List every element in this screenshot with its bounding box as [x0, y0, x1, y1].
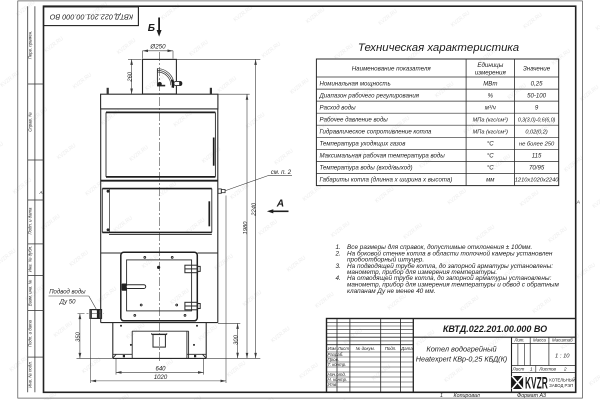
svg-text:Гидравлическое сопротивление к: Гидравлическое сопротивление котла [320, 129, 433, 136]
svg-text:640: 640 [155, 366, 166, 372]
svg-text:1 : 10: 1 : 10 [555, 354, 570, 360]
svg-text:350: 350 [76, 331, 82, 341]
svg-text:Т. контр.: Т. контр. [328, 362, 347, 367]
svg-text:°С: °С [487, 153, 494, 160]
svg-text:Копировал: Копировал [454, 393, 480, 399]
svg-text:3.: 3. [336, 263, 341, 270]
svg-text:Подп.: Подп. [385, 346, 397, 351]
svg-text:Подп. и дата: Подп. и дата [28, 319, 33, 347]
svg-text:2: 2 [563, 367, 567, 372]
svg-text:0,25: 0,25 [531, 80, 543, 87]
svg-text:Подп. и дата: Подп. и дата [28, 207, 33, 235]
svg-text:Температура воды (вход/выход): Температура воды (вход/выход) [320, 165, 413, 172]
svg-text:№ докум.: № докум. [356, 346, 375, 351]
svg-text:0,3(3,0)-0,6(6,0): 0,3(3,0)-0,6(6,0) [518, 118, 556, 124]
svg-text:Диапазон рабочего регулировани: Диапазон рабочего регулирования [319, 92, 420, 99]
svg-text:КВТД.022.201.00.000 ВО: КВТД.022.201.00.000 ВО [50, 12, 134, 21]
svg-text:Техническая характеристика: Техническая характеристика [358, 42, 519, 54]
svg-text:Наименование показателя: Наименование показателя [352, 66, 432, 73]
svg-text:Котел водогрейный: Котел водогрейный [426, 344, 496, 353]
svg-text:Рабочее давление воды: Рабочее давление воды [320, 117, 389, 124]
svg-text:Расход воды: Расход воды [320, 104, 357, 111]
svg-text:Перв. примен.: Перв. примен. [28, 31, 33, 60]
svg-text:мм: мм [486, 177, 495, 184]
svg-text:Лист: Лист [512, 367, 525, 372]
svg-text:МПа (кгс/см²): МПа (кгс/см²) [473, 118, 508, 124]
svg-text:Лист: Лист [337, 346, 350, 351]
svg-text:м³/ч: м³/ч [485, 104, 497, 111]
svg-text:Heatexpert КВр-0,25 КБД(К): Heatexpert КВр-0,25 КБД(К) [416, 355, 507, 364]
svg-text:2.: 2. [335, 250, 341, 257]
svg-text:°С: °С [487, 141, 494, 148]
svg-text:0,02(0,2): 0,02(0,2) [525, 130, 548, 136]
svg-text:1: 1 [440, 393, 443, 399]
svg-text:Габариты котла (длинна х ширин: Габариты котла (длинна х ширина х высота… [320, 177, 453, 184]
svg-text:1: 1 [530, 367, 533, 372]
svg-text:Лит.: Лит. [513, 338, 524, 343]
svg-text:Листов: Листов [538, 367, 556, 372]
svg-text:Температура уходящих газов: Температура уходящих газов [320, 141, 406, 148]
svg-text:МВт: МВт [483, 80, 497, 87]
svg-text:260: 260 [127, 71, 133, 82]
svg-text:ЗАВОД РЭП: ЗАВОД РЭП [549, 383, 573, 388]
svg-text:МПа (кгс/см²): МПа (кгс/см²) [473, 130, 508, 136]
svg-text:300: 300 [233, 334, 239, 344]
svg-text:Масштаб: Масштаб [552, 338, 573, 343]
svg-text:2240: 2240 [251, 202, 257, 217]
svg-text:KVZR: KVZR [525, 374, 548, 393]
svg-text:КОТЕЛЬНЫЙ: КОТЕЛЬНЫЙ [549, 378, 575, 383]
svg-text:Инв. № подл.: Инв. № подл. [28, 361, 33, 388]
svg-text:115: 115 [532, 153, 542, 160]
svg-text:А: А [276, 198, 284, 209]
svg-text:измерения: измерения [475, 69, 507, 76]
svg-text:Номинальная мощность: Номинальная мощность [320, 80, 391, 87]
svg-text:1980: 1980 [243, 221, 249, 235]
svg-text:Формат А3: Формат А3 [517, 393, 546, 399]
svg-text:%: % [488, 92, 494, 99]
svg-text:Ду 50: Ду 50 [59, 299, 76, 305]
svg-text:Инв. № дубл.: Инв. № дубл. [28, 246, 33, 272]
svg-text:Справ. №: Справ. № [28, 112, 33, 132]
svg-text:4.: 4. [336, 275, 341, 282]
svg-text:КВТД.022.201.00.000 ВО: КВТД.022.201.00.000 ВО [443, 324, 547, 334]
svg-text:1020: 1020 [154, 375, 168, 381]
svg-text:А: А [576, 200, 580, 205]
svg-text:Подвод воды: Подвод воды [49, 290, 86, 296]
svg-text:Максимальная рабочая температу: Максимальная рабочая температура воды [320, 153, 446, 160]
svg-text:Взам. инв. №: Взам. инв. № [28, 279, 33, 306]
svg-text:не более 250: не более 250 [519, 142, 555, 148]
svg-text:Дата: Дата [400, 346, 413, 351]
svg-text:70/95: 70/95 [529, 165, 545, 172]
svg-text:Единицы: Единицы [477, 62, 503, 69]
svg-text:1210х1020х2240: 1210х1020х2240 [515, 178, 559, 184]
svg-text:°С: °С [487, 165, 494, 172]
svg-text:Изм: Изм [328, 346, 336, 351]
svg-text:50-100: 50-100 [527, 92, 547, 99]
svg-text:клапанам Ду не менее 40 мм.: клапанам Ду не менее 40 мм. [347, 288, 436, 295]
svg-text:Б: Б [148, 23, 155, 34]
svg-text:Ø250: Ø250 [149, 43, 166, 50]
svg-text:Утв.: Утв. [328, 382, 338, 387]
svg-text:Масса: Масса [533, 338, 547, 343]
svg-text:см. п. 2: см. п. 2 [271, 170, 292, 176]
svg-text:А: А [38, 190, 42, 195]
svg-text:Значение: Значение [523, 66, 551, 73]
